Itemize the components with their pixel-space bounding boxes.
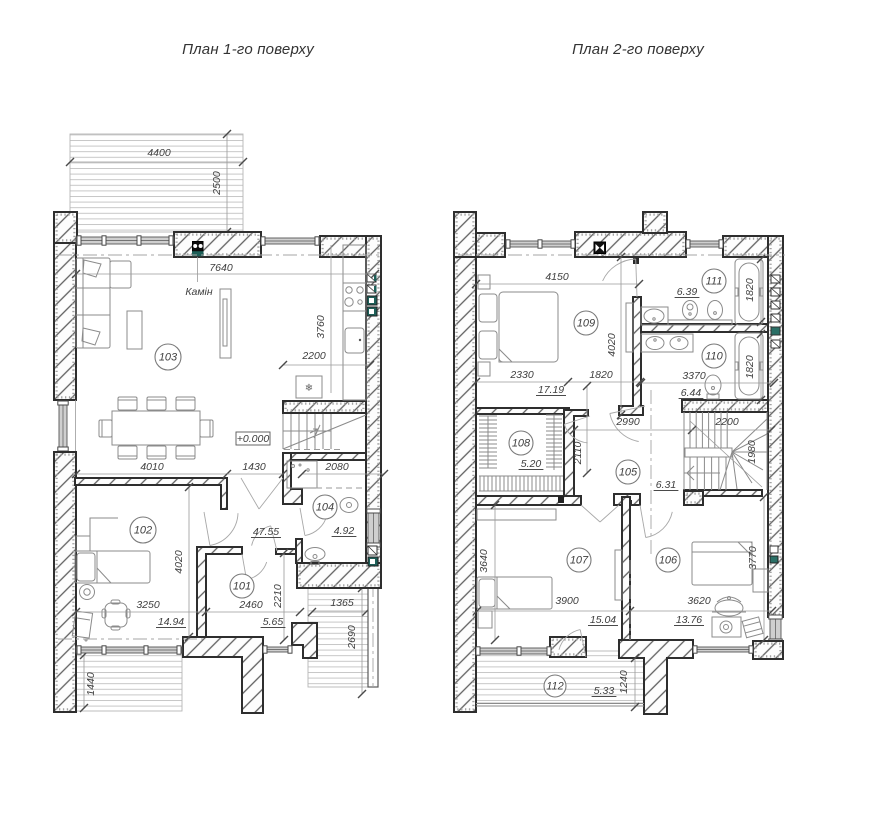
svg-text:3770: 3770: [747, 546, 759, 570]
svg-text:1820: 1820: [744, 355, 756, 379]
svg-text:112: 112: [546, 681, 564, 693]
svg-text:15.04: 15.04: [590, 614, 616, 626]
svg-text:1820: 1820: [589, 369, 613, 381]
svg-text:107: 107: [570, 555, 589, 567]
svg-text:2200: 2200: [714, 416, 739, 428]
svg-text:104: 104: [316, 502, 334, 514]
svg-text:2460: 2460: [238, 599, 263, 611]
svg-text:101: 101: [233, 581, 251, 593]
svg-text:5.65: 5.65: [263, 616, 284, 628]
svg-text:105: 105: [619, 467, 638, 479]
svg-text:1440: 1440: [85, 672, 97, 696]
svg-text:2690: 2690: [346, 625, 358, 650]
svg-text:13.76: 13.76: [676, 614, 702, 626]
svg-text:6.44: 6.44: [681, 387, 702, 399]
svg-text:111: 111: [706, 276, 723, 288]
svg-text:108: 108: [512, 438, 531, 450]
svg-text:106: 106: [659, 555, 678, 567]
svg-text:Камін: Камін: [185, 286, 213, 298]
svg-text:+0.000: +0.000: [237, 433, 270, 445]
svg-text:109: 109: [577, 318, 595, 330]
svg-text:2210: 2210: [272, 584, 284, 609]
svg-text:3900: 3900: [555, 595, 579, 607]
svg-text:4150: 4150: [545, 271, 569, 283]
svg-text:4020: 4020: [606, 333, 618, 357]
svg-text:2330: 2330: [509, 369, 534, 381]
svg-text:47.55: 47.55: [253, 526, 279, 538]
svg-text:1365: 1365: [330, 597, 354, 609]
svg-text:1820: 1820: [744, 278, 756, 302]
svg-text:План 1-го поверху: План 1-го поверху: [182, 41, 315, 58]
svg-text:102: 102: [134, 525, 152, 537]
svg-text:3370: 3370: [682, 370, 706, 382]
svg-text:2990: 2990: [615, 416, 640, 428]
svg-text:14.94: 14.94: [158, 616, 184, 628]
svg-text:1980: 1980: [746, 440, 758, 464]
svg-text:2110: 2110: [572, 442, 584, 466]
svg-text:2200: 2200: [301, 350, 326, 362]
svg-text:4020: 4020: [173, 550, 185, 574]
svg-text:6.39: 6.39: [677, 286, 698, 298]
svg-text:6.31: 6.31: [656, 479, 676, 491]
svg-text:4.92: 4.92: [334, 525, 355, 537]
svg-text:7640: 7640: [209, 262, 233, 274]
svg-text:1430: 1430: [242, 461, 266, 473]
svg-text:3250: 3250: [136, 599, 160, 611]
svg-text:110: 110: [705, 351, 723, 363]
svg-text:1240: 1240: [618, 670, 630, 694]
svg-text:3640: 3640: [478, 549, 490, 573]
svg-text:4010: 4010: [140, 461, 164, 473]
svg-text:4400: 4400: [147, 147, 171, 159]
svg-text:2080: 2080: [324, 461, 349, 473]
svg-text:3760: 3760: [315, 315, 327, 339]
svg-text:План 2-го поверху: План 2-го поверху: [572, 41, 705, 58]
svg-text:5.33: 5.33: [594, 685, 615, 697]
svg-text:5.20: 5.20: [521, 458, 542, 470]
svg-text:❄: ❄: [305, 383, 313, 394]
svg-text:17.19: 17.19: [538, 384, 564, 396]
svg-text:2500: 2500: [211, 171, 223, 196]
svg-text:103: 103: [159, 352, 178, 364]
svg-text:3620: 3620: [687, 595, 711, 607]
